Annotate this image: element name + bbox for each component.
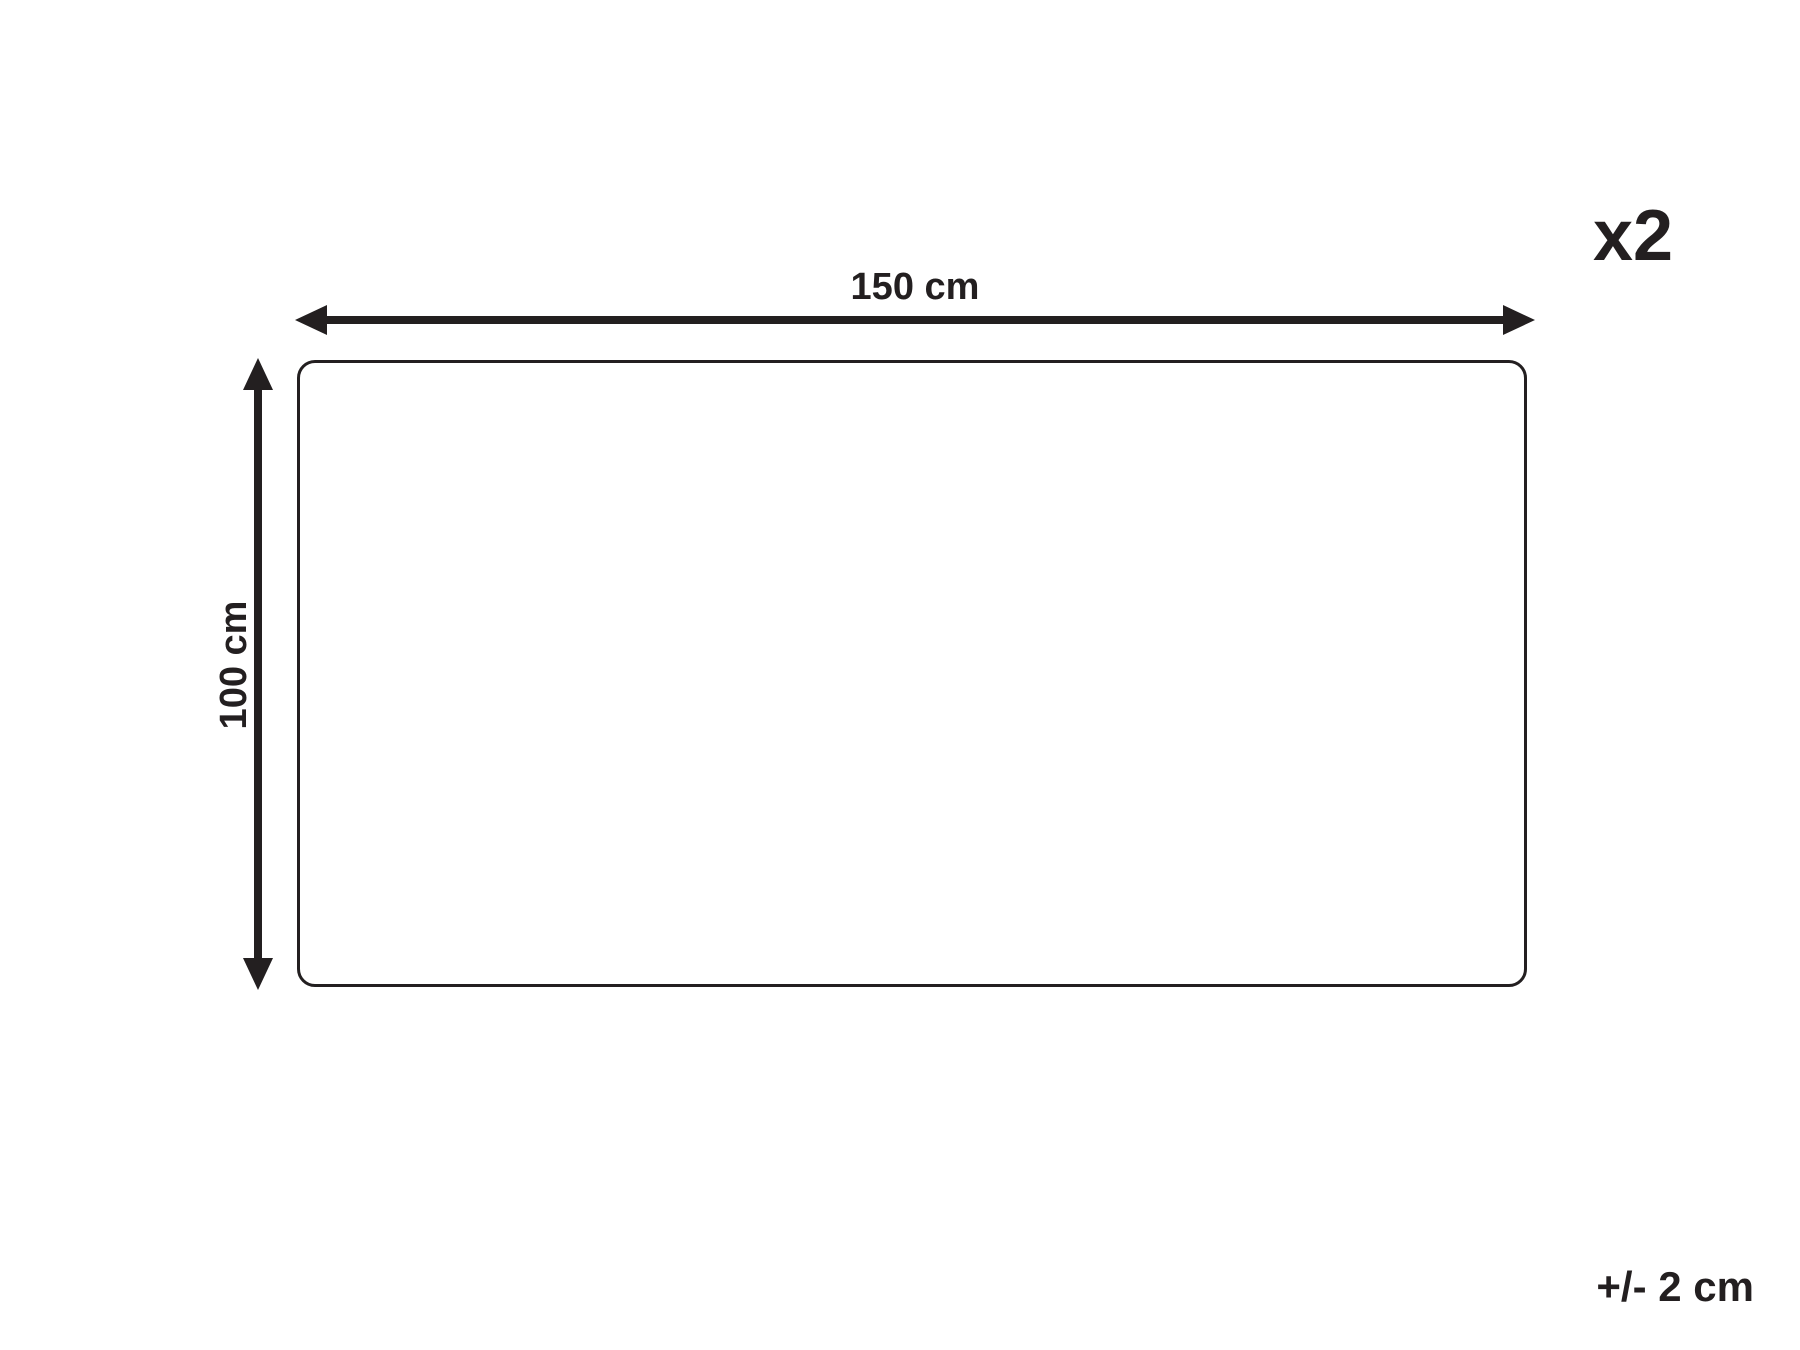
dimension-diagram: x2 150 cm 100 cm +/- 2 cm bbox=[0, 0, 1800, 1350]
quantity-label: x2 bbox=[1593, 200, 1673, 272]
height-dimension-arrow-icon bbox=[238, 358, 278, 990]
tolerance-label: +/- 2 cm bbox=[1596, 1266, 1754, 1308]
width-dimension-arrow-icon bbox=[295, 300, 1535, 340]
product-outline bbox=[297, 360, 1527, 987]
